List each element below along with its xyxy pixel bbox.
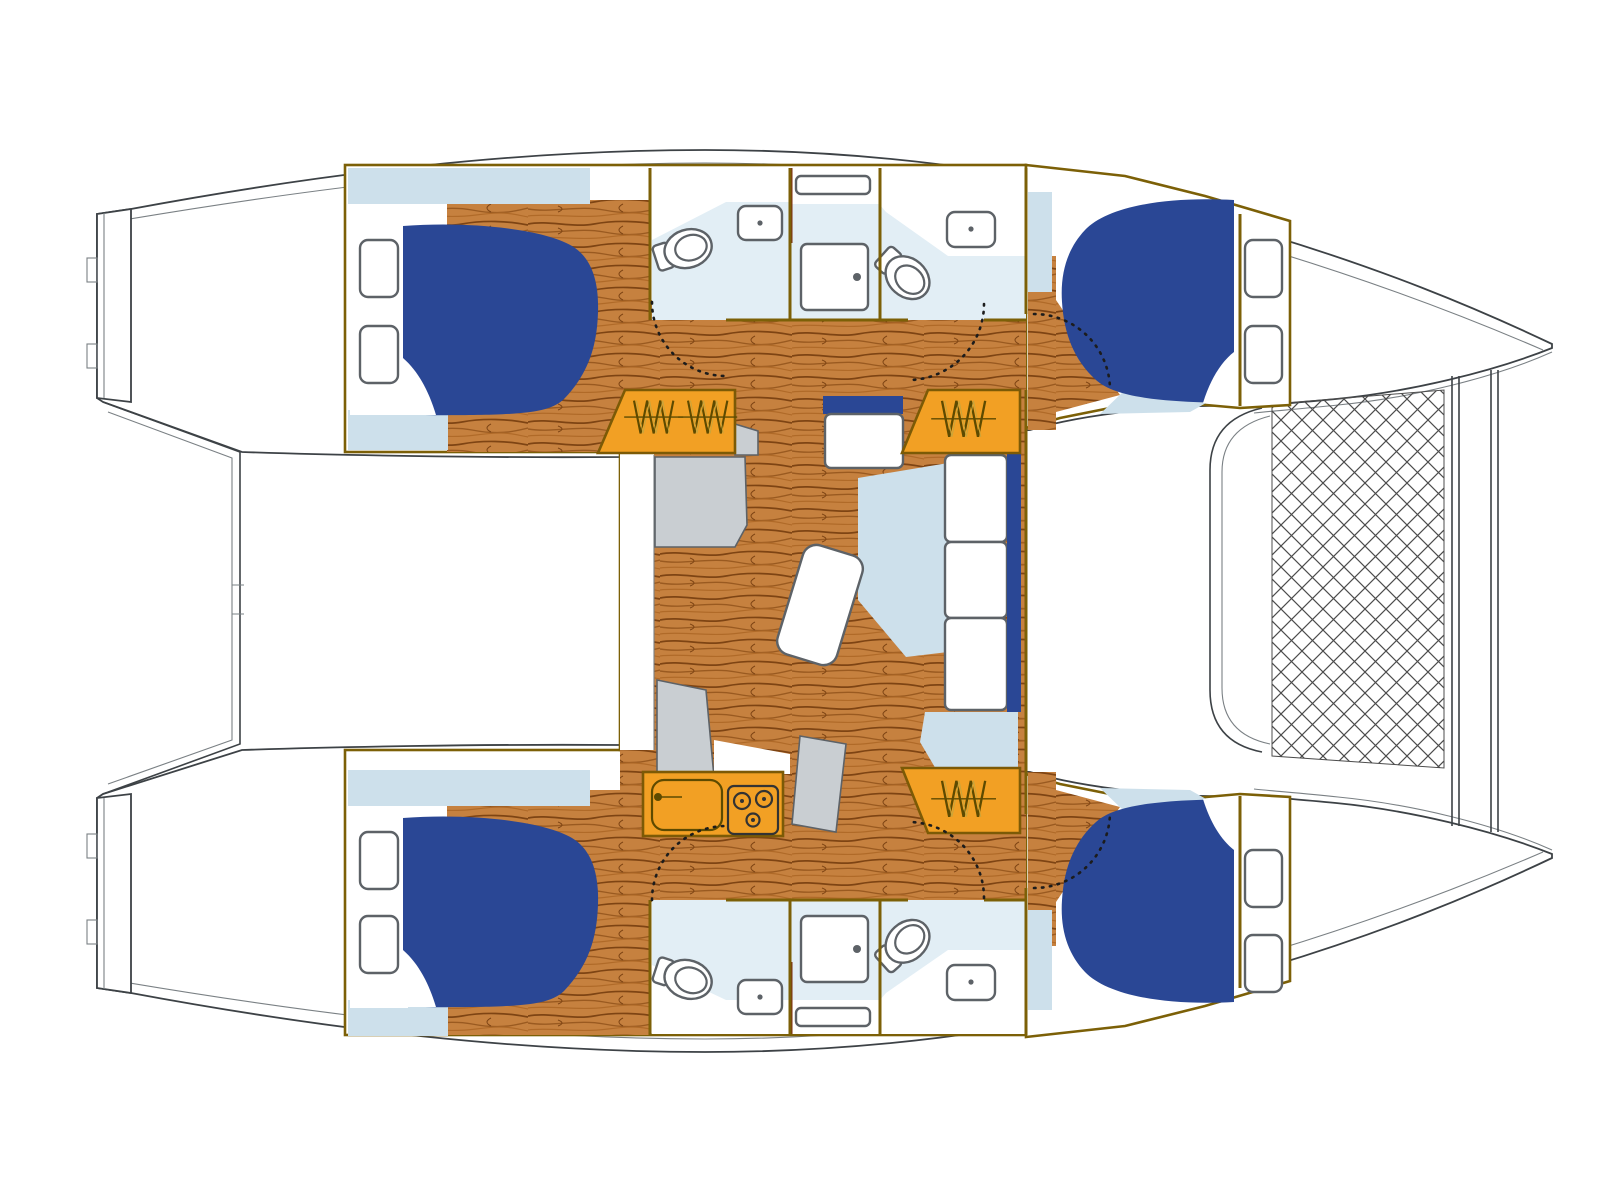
transom-bottom <box>97 794 131 993</box>
forward-crossbeam <box>1452 376 1459 826</box>
shelf <box>1028 192 1052 292</box>
faucet-base <box>654 793 662 801</box>
shelf-top <box>348 770 590 806</box>
counter <box>657 680 714 777</box>
heads-top <box>650 168 1026 320</box>
settee-cushion <box>945 618 1007 710</box>
transom-top <box>97 209 131 402</box>
forward-crossbeam-2 <box>1491 370 1498 832</box>
shower-door-handle <box>853 945 861 953</box>
settee-cushion <box>945 542 1007 618</box>
walkway <box>620 452 654 750</box>
galley-island <box>792 736 846 832</box>
burner-dot <box>740 799 744 803</box>
sink-drain <box>968 979 973 984</box>
deck-hatch <box>360 916 398 973</box>
deck-hatch <box>1245 850 1282 907</box>
sideboard-back <box>823 396 903 414</box>
aft-platform-edge <box>103 402 240 794</box>
foredeck-edge-inner <box>1222 416 1270 744</box>
shelf-bottom <box>348 410 448 450</box>
settee-backrest <box>1007 452 1021 712</box>
boarding-step <box>87 920 97 944</box>
deck-hatch <box>360 240 398 297</box>
deck-hatch <box>1245 326 1282 383</box>
shelf <box>1028 910 1052 1010</box>
deck-hatch <box>1245 240 1282 297</box>
stern-transoms <box>87 209 131 993</box>
sideboard <box>825 414 903 468</box>
skylight <box>796 1008 870 1026</box>
heads-bottom <box>650 900 1026 1034</box>
shelf-top <box>348 168 590 204</box>
boarding-step <box>87 258 97 282</box>
double-bed <box>403 225 598 416</box>
shower-door-handle <box>853 273 861 281</box>
foredeck-edge <box>1210 408 1262 752</box>
sink-drain <box>757 220 762 225</box>
deck-hatch <box>1245 935 1282 992</box>
counter <box>655 457 747 547</box>
sink-drain <box>968 226 973 231</box>
burner-dot <box>762 797 766 801</box>
double-bed <box>403 817 598 1008</box>
floor-plan-page <box>0 0 1600 1200</box>
settee-cushion <box>945 455 1007 542</box>
aft-platform-edge-inner <box>108 412 232 784</box>
deck-hatch <box>360 326 398 383</box>
bow-area <box>1210 370 1498 832</box>
sink-drain <box>757 994 762 999</box>
aft-platform-notch <box>232 585 244 614</box>
skylight <box>796 176 870 194</box>
aft-platform <box>103 402 244 794</box>
boarding-step <box>87 834 97 858</box>
deck-hatch <box>360 832 398 889</box>
burner-dot <box>751 818 755 822</box>
boarding-step <box>87 344 97 368</box>
trampoline-net <box>1272 390 1444 768</box>
catamaran-deck-plan <box>0 0 1600 1200</box>
settee-return <box>920 712 1018 776</box>
